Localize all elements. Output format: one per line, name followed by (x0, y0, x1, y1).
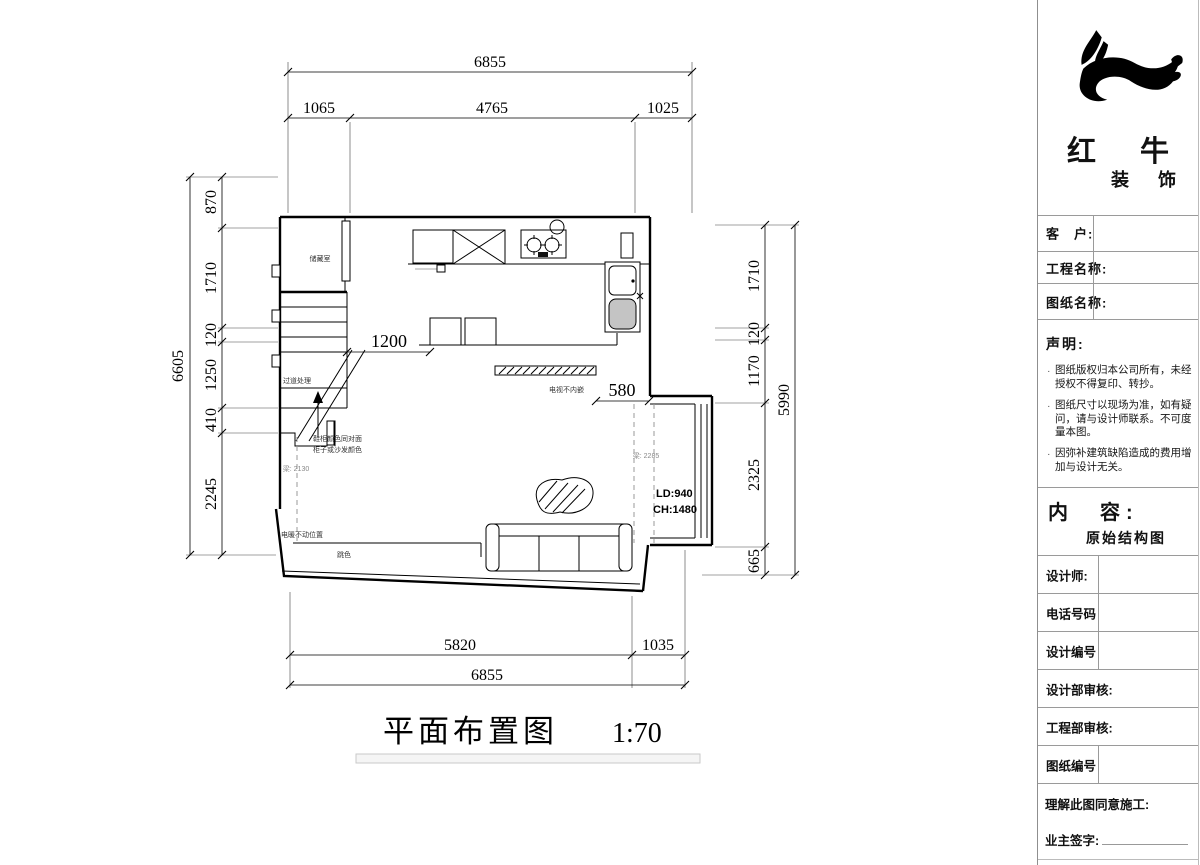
dim-right-2325: 2325 (746, 459, 763, 491)
dimension-texts: 6855 1065 4765 1025 6605 870 1710 120 12… (170, 54, 793, 684)
tv-label: 电视不内嵌 (549, 385, 584, 394)
row-drawing-no-label: 图纸编号 (1046, 755, 1096, 774)
dimension-lines (186, 68, 799, 689)
table-1 (430, 318, 461, 345)
dim-left-1250: 1250 (203, 359, 220, 391)
cabinet-foot (437, 265, 445, 272)
row-design-review: 设计部审核: (1038, 670, 1198, 708)
beam-lines (297, 404, 654, 543)
content-section: 内 容: 原始结构图 (1038, 487, 1198, 556)
meter-box (621, 233, 633, 258)
dim-right-1710: 1710 (746, 260, 763, 292)
window-ld-label: LD:940 (656, 488, 693, 500)
content-value: 原始结构图 (1086, 528, 1198, 548)
field-drawing-label: 图纸名称: (1046, 292, 1107, 311)
furniture (419, 318, 632, 571)
dim-1200: 1200 (371, 331, 407, 351)
row-divider (1098, 594, 1099, 631)
statement-title: 声明: (1046, 334, 1194, 354)
stove-knob (538, 252, 548, 257)
row-design-no-label: 设计编号 (1046, 641, 1096, 660)
field-divider (1093, 284, 1094, 319)
sofa-arm-right (619, 524, 632, 571)
wall-shaft-3 (272, 355, 280, 367)
dim-right-total: 5990 (776, 384, 793, 416)
drawing-title: 平面布置图 1:70 (356, 714, 700, 763)
dim-top-1065: 1065 (303, 100, 335, 117)
beam-right-label: 梁: 2285 (633, 451, 660, 460)
stair-up-arrow (313, 391, 323, 403)
dim-bottom-5820: 5820 (444, 637, 476, 654)
plan-scale-text: 1:70 (612, 718, 662, 749)
beam-left-label: 梁: 2130 (283, 464, 310, 473)
dim-right-1170: 1170 (746, 355, 763, 386)
row-divider (1098, 746, 1099, 783)
color-note-2: 柜子或沙发颜色 (313, 445, 362, 454)
bottom-rule (1038, 859, 1198, 860)
table-2 (465, 318, 496, 345)
row-phone: 电话号码 (1038, 594, 1198, 632)
window-ch-label: CH:1480 (653, 504, 697, 516)
wall-shaft-2 (272, 310, 280, 322)
wall-shaft-1 (272, 265, 280, 277)
extension-lines (186, 62, 799, 688)
row-engineering-review-label: 工程部审核: (1046, 717, 1113, 736)
dim-left-870: 870 (203, 190, 220, 214)
dimension-ticks (186, 68, 799, 689)
dim-top-1025: 1025 (647, 100, 679, 117)
statement-section: 声明: 图纸版权归本公司所有，未经授权不得复印、转抄。 图纸尺寸以现场为准，如有… (1038, 320, 1198, 487)
signature-line (1102, 834, 1188, 845)
footer-section: 理解此图同意施工: 业主签字: (1038, 784, 1198, 865)
sofa (486, 524, 632, 571)
field-divider (1093, 215, 1094, 251)
dim-left-120: 120 (203, 323, 220, 347)
brand-subname: 装 饰 (1111, 166, 1188, 192)
row-drawing-no: 图纸编号 (1038, 746, 1198, 784)
row-designer-label: 设计师: (1046, 565, 1088, 584)
dim-top-4765: 4765 (476, 100, 508, 117)
agree-label: 理解此图同意施工: (1045, 794, 1149, 813)
field-project-label: 工程名称: (1046, 258, 1107, 277)
statement-item: 图纸尺寸以现场为准，如有疑问，请与设计师联系。不可度量本图。 (1046, 399, 1194, 441)
row-phone-label: 电话号码 (1046, 603, 1096, 622)
floorplan-drawing: 6855 1065 4765 1025 6605 870 1710 120 12… (0, 0, 1037, 865)
row-design-no: 设计编号 (1038, 632, 1198, 670)
title-block: 红 牛 装 饰 客 户: 工程名称: 图纸名称: 声明: 图纸版权归本公司所有，… (1037, 0, 1199, 865)
owner-signature: 业主签字: (1045, 830, 1188, 849)
statement-item: 因弥补建筑缺陷造成的费用增加与设计无关。 (1046, 447, 1194, 475)
stairs (280, 217, 365, 441)
plan-title-text: 平面布置图 (383, 714, 558, 749)
title-underline-bar (356, 754, 700, 763)
dim-left-410: 410 (203, 408, 220, 432)
dim-580: 580 (609, 380, 636, 400)
info-grid: 设计师: 电话号码 设计编号 设计部审核: 工程部审核: 图纸编号 (1038, 556, 1198, 784)
sofa-arm-left (486, 524, 499, 571)
field-customer: 客 户: (1038, 215, 1198, 252)
kitchen (408, 220, 650, 332)
field-project-name: 工程名称: (1038, 252, 1198, 284)
kitchen-cabinet (413, 230, 453, 263)
field-divider (1093, 252, 1094, 283)
statement-item: 图纸版权归本公司所有，未经授权不得复印、转抄。 (1046, 364, 1194, 392)
dim-top-total: 6855 (474, 54, 506, 71)
field-customer-label: 客 户: (1046, 224, 1093, 243)
sign-label: 业主签字: (1045, 834, 1099, 848)
dim-left-1710: 1710 (203, 262, 220, 294)
row-design-review-label: 设计部审核: (1046, 679, 1113, 698)
faucet (631, 279, 634, 282)
brand-name: 红 牛 (1038, 128, 1198, 170)
row-designer: 设计师: (1038, 556, 1198, 594)
floorplan-page: 6855 1065 4765 1025 6605 870 1710 120 12… (0, 0, 1200, 865)
field-drawing-name: 图纸名称: (1038, 284, 1198, 320)
dim-left-total: 6605 (170, 350, 187, 382)
row-divider (1098, 556, 1099, 593)
row-divider (1098, 632, 1099, 669)
heater-label: 电暖不动位置 (281, 530, 323, 539)
brand-logo-area: 红 牛 装 饰 (1038, 0, 1198, 216)
content-label: 内 容: (1048, 496, 1198, 525)
bull-logo-icon (1056, 28, 1184, 120)
sink-basin-bottom (609, 299, 636, 329)
dim-bottom-total: 6855 (471, 667, 503, 684)
row-engineering-review: 工程部审核: (1038, 708, 1198, 746)
corridor-label: 过道处理 (283, 376, 311, 385)
storage-label: 储藏室 (310, 254, 331, 263)
storage-door-leaf (342, 221, 350, 281)
dim-right-120: 120 (746, 322, 763, 346)
dim-right-665: 665 (746, 549, 763, 573)
color-note-1: 鞋柜颜色同对面 (313, 434, 362, 443)
accent-color-label: 跳色 (337, 550, 351, 559)
dim-left-2245: 2245 (203, 478, 220, 510)
dim-bottom-1035: 1035 (642, 637, 674, 654)
